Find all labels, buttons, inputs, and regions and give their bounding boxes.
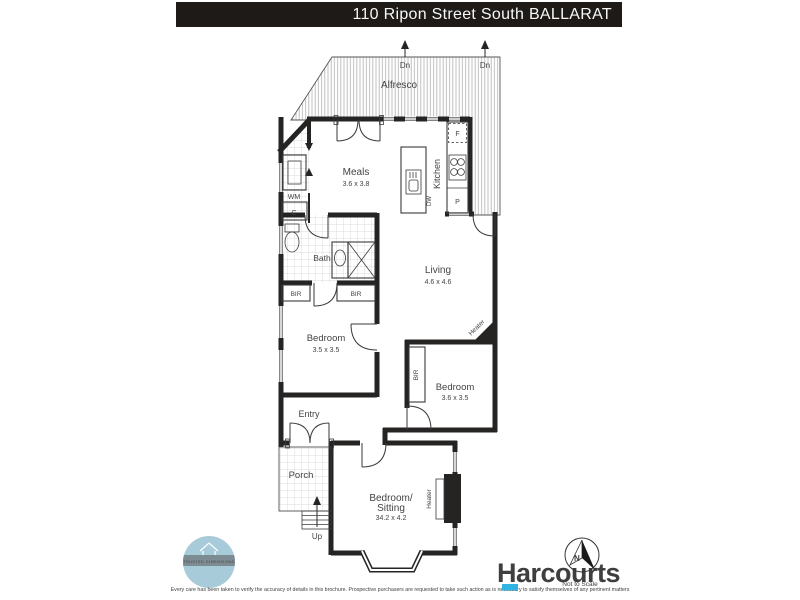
floorplan-page: 110 Ripon Street South BALLARAT Alfresco… — [0, 0, 800, 600]
fridge-label: F — [455, 131, 459, 138]
cooktop-icon — [449, 155, 466, 180]
robe-label-1: BIR — [291, 291, 302, 298]
room-dims-bedroom-sitting: 34.2 x 4.2 — [376, 515, 407, 522]
kitchen-bench: F P — [447, 122, 468, 213]
room-label-kitchen: Kitchen — [432, 159, 442, 189]
room-label-bath: Bath — [313, 253, 331, 263]
robe-bedroom2: BIR — [409, 347, 425, 402]
room-dims-meals: 3.6 x 3.8 — [343, 181, 370, 188]
bedroom2-door — [407, 406, 431, 430]
room-label-bedroom-sitting-2: Sitting — [377, 503, 405, 514]
stairs-down-arrow-2: Dn — [480, 40, 490, 70]
sitting-room-door — [362, 443, 386, 467]
room-label-meals: Meals — [343, 167, 370, 178]
room-label-alfresco: Alfresco — [381, 80, 418, 91]
page-title: 110 Ripon Street South BALLARAT — [176, 2, 622, 27]
room-label-bedroom1: Bedroom — [307, 333, 346, 344]
room-dims-living: 4.6 x 4.6 — [425, 279, 452, 286]
dishwasher-label: DW — [427, 196, 433, 206]
stairs-down-arrow-1: Dn — [400, 40, 410, 70]
not-to-scale-label: Not to Scale — [562, 581, 598, 588]
cupboard-label: C — [291, 210, 296, 217]
bedroom1-robe-door — [314, 283, 337, 306]
room-dims-bedroom1: 3.5 x 3.5 — [313, 347, 340, 354]
living-side-door — [473, 214, 495, 236]
room-label-bedroom2: Bedroom — [436, 382, 475, 393]
room-label-porch: Porch — [289, 470, 314, 481]
compass-north-label: N — [574, 554, 580, 563]
bay-window — [362, 551, 422, 570]
kitchen-island: DW — [401, 147, 433, 213]
robe-bedroom1-right: BIR — [337, 285, 375, 301]
washing-machine-label: WM — [288, 194, 301, 201]
robe-label-3: BIR — [413, 369, 420, 380]
sitting-heater-label: Heater — [426, 488, 433, 508]
floorplan-company-logo: TRUSTED DIMENSIONS — [183, 536, 235, 588]
footer: TRUSTED DIMENSIONS Every care has been t… — [171, 536, 630, 593]
sitting-heater-icon: Heater — [426, 474, 461, 523]
living-jog-window — [449, 212, 469, 217]
robe-label-2: BIR — [351, 291, 362, 298]
brand-logo-text: Harcourts — [497, 558, 620, 588]
stairs-down-label-2: Dn — [480, 61, 490, 70]
logo-band-text: TRUSTED DIMENSIONS — [183, 560, 234, 564]
floor-plan: Alfresco Dn Dn — [0, 0, 800, 600]
stairs-up-label: Up — [312, 532, 323, 541]
stairs-down-label-1: Dn — [400, 61, 410, 70]
bedroom1-door — [351, 324, 377, 350]
robe-bedroom1-left: BIR — [282, 285, 310, 301]
entry-french-doors — [286, 423, 334, 448]
room-dims-bedroom2: 3.6 x 3.5 — [442, 395, 469, 402]
room-label-living: Living — [425, 265, 451, 276]
pantry-label: P — [455, 199, 460, 206]
room-label-entry: Entry — [298, 409, 320, 419]
